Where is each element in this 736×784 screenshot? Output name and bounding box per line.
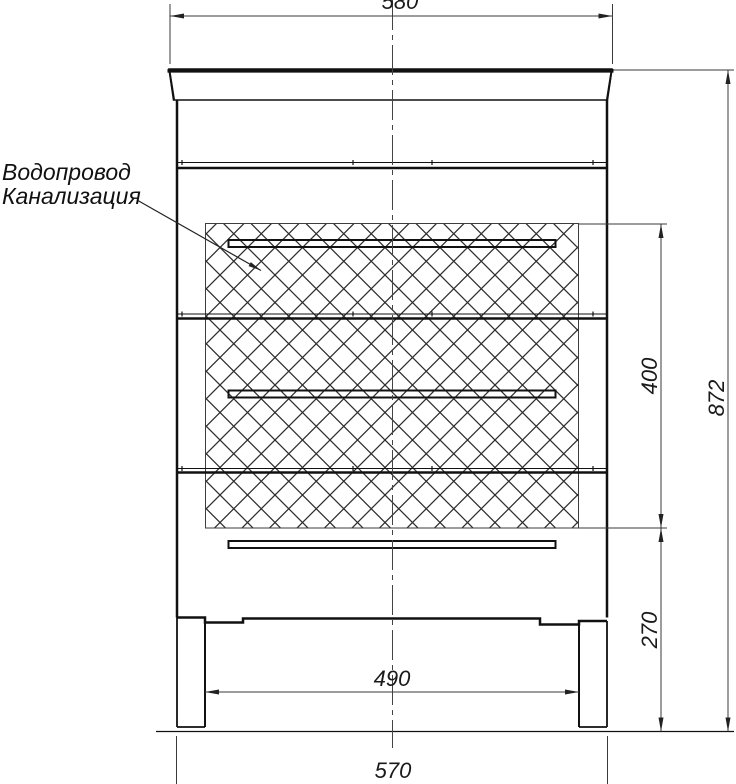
dim-text-hatch-zone-height: 400 bbox=[637, 357, 662, 394]
callout-label-sewerage: Канализация bbox=[2, 183, 141, 209]
technical-drawing-canvas: 580 400 270 872 490 570 Водопровод bbox=[0, 0, 736, 784]
callout-label-water-supply: Водопровод bbox=[2, 159, 131, 185]
drawing-sheet: 580 400 270 872 490 570 Водопровод bbox=[0, 0, 736, 784]
dim-text-overall-height: 872 bbox=[704, 380, 729, 417]
dim-text-cabinet-width: 570 bbox=[375, 758, 412, 783]
dim-text-plinth-zone-height: 270 bbox=[637, 611, 662, 649]
dim-text-countertop-width: 580 bbox=[382, 0, 419, 14]
dim-text-legs-inner-width: 490 bbox=[374, 666, 411, 691]
